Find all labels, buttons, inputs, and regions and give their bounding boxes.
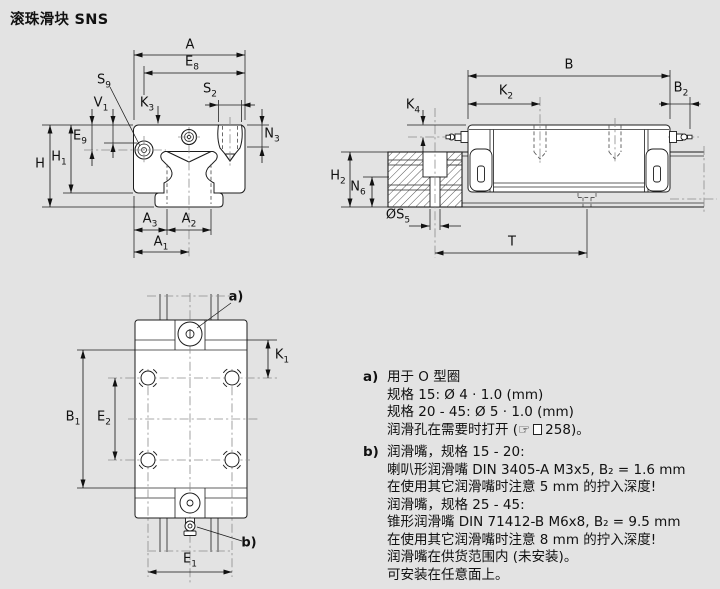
dim-label-e9: E9: [73, 130, 87, 147]
dim-label-t: T: [508, 236, 516, 253]
dim-label-e1: E1: [183, 553, 197, 570]
dim-label-a-front: A: [186, 39, 195, 56]
dim-label-a2: A2: [182, 213, 197, 230]
note-b-line3: 在使用其它润滑嘴时注意 5 mm 的拧入深度!: [387, 479, 686, 497]
note-b-label: b): [363, 444, 387, 584]
dim-label-k3: K3: [140, 97, 154, 114]
dim-label-e8: E8: [185, 56, 199, 73]
dim-label-k4: K4: [406, 99, 420, 116]
note-b-line6: 在使用其它润滑嘴时注意 8 mm 的拧入深度!: [387, 532, 686, 550]
dim-label-n6: N6: [350, 181, 365, 198]
note-b-line2: 喇叭形润滑嘴 DIN 3405-A M3x5, B₂ = 1.6 mm: [387, 462, 686, 480]
dim-label-h1: H1: [51, 151, 67, 168]
dim-label-k1: K1: [275, 349, 289, 366]
note-b-line8: 可安装在任意面上。: [387, 567, 686, 585]
dim-label-h: H: [35, 158, 45, 175]
note-b-line4: 润滑嘴，规格 25 - 45:: [387, 497, 686, 515]
dim-label-b2: B2: [674, 82, 689, 99]
dim-label-a1: A1: [154, 236, 169, 253]
dim-label-a3: A3: [143, 213, 158, 230]
catalog-page: 滚珠滑块 SNS: [0, 0, 720, 589]
dim-label-e2: E2: [97, 411, 111, 428]
note-a-label: a): [363, 369, 387, 439]
note-a-line2: 规格 15: Ø 4 · 1.0 (mm): [387, 387, 590, 405]
notes: a) 用于 O 型圈 规格 15: Ø 4 · 1.0 (mm) 规格 20 -…: [363, 369, 715, 584]
pointing-hand-icon: ☞: [518, 422, 530, 438]
dim-label-b-side: B: [565, 59, 574, 76]
callout-b-label: b): [241, 537, 256, 554]
note-b-line1: 润滑嘴，规格 15 - 20:: [387, 444, 686, 462]
dim-label-b1: B1: [66, 411, 81, 428]
note-a-ref: 润滑孔在需要时打开 (☞258)。: [387, 422, 590, 440]
note-b-line7: 润滑嘴在供货范围内 (未安装)。: [387, 549, 686, 567]
callout-a-label: a): [229, 291, 244, 308]
note-a-line3: 规格 20 - 45: Ø 5 · 1.0 (mm): [387, 404, 590, 422]
note-b: b) 润滑嘴，规格 15 - 20: 喇叭形润滑嘴 DIN 3405-A M3x…: [363, 444, 715, 584]
dim-label-h2: H2: [330, 170, 346, 187]
dim-label-s9: S9: [97, 74, 111, 91]
dim-label-s2: S2: [203, 83, 217, 100]
dim-label-v1: V1: [94, 97, 109, 114]
note-a-line1: 用于 O 型圈: [387, 369, 590, 387]
note-a: a) 用于 O 型圈 规格 15: Ø 4 · 1.0 (mm) 规格 20 -…: [363, 369, 715, 439]
page-icon: [533, 424, 542, 435]
side-view: [341, 70, 717, 258]
dim-label-n3: N3: [264, 128, 279, 145]
note-b-line5: 锥形润滑嘴 DIN 71412-B M6x8, B₂ = 9.5 mm: [387, 514, 686, 532]
dim-label-k2: K2: [499, 85, 513, 102]
dim-label-s5: ØS5: [386, 209, 410, 226]
